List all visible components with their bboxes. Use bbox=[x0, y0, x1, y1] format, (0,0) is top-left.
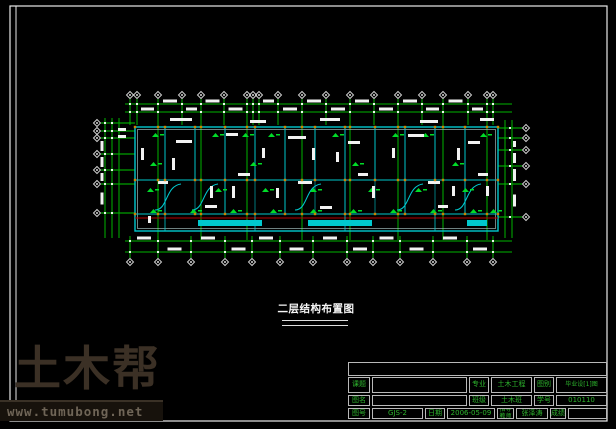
titleblock-value-grade bbox=[568, 408, 607, 419]
text-annotations bbox=[101, 100, 517, 254]
titleblock-topic-row bbox=[348, 362, 607, 376]
titleblock-label-student-id: 学号 bbox=[534, 395, 554, 406]
titleblock-value-date: 2006-05-09 bbox=[447, 408, 495, 419]
titleblock-value-class: 土木班 bbox=[491, 395, 532, 406]
titleblock-label-grade: 成绩 bbox=[550, 408, 566, 419]
titleblock-label-drawing-name: 图名 bbox=[348, 395, 370, 406]
titleblock-value-drawing-name bbox=[372, 395, 467, 406]
drawing-caption: 二层结构布置图 bbox=[272, 301, 360, 316]
beam-markers bbox=[147, 133, 502, 213]
axis-bubbles bbox=[94, 92, 530, 266]
titleblock-value-advisor: 张泽涛 bbox=[516, 408, 548, 419]
axis-grid-lines bbox=[101, 99, 522, 258]
titleblock-value-topic bbox=[372, 377, 467, 393]
titleblock-label-class: 班级 bbox=[469, 395, 489, 406]
titleblock-label-date: 日期 bbox=[425, 408, 445, 419]
titleblock-value-major: 土木工程 bbox=[491, 377, 532, 393]
cad-drawing-sheet: 二层结构布置图 课题 专业 土木工程 图别 毕业设[1]图 图名 班级 土木班 … bbox=[0, 0, 616, 429]
column-dots bbox=[134, 126, 499, 215]
titleblock-label-drawing-no: 图号 bbox=[348, 408, 370, 419]
titleblock-value-drawing-type: 毕业设[1]图 bbox=[556, 377, 607, 393]
titleblock-value-drawing-no: GJS-2 bbox=[372, 408, 423, 419]
watermark-band: www.tumubong.net bbox=[0, 400, 163, 421]
watermark-logo: 土木帮 bbox=[14, 346, 184, 393]
watermark-url: www.tumubong.net bbox=[0, 404, 143, 419]
titleblock-label-advisor: 指导教师 bbox=[497, 408, 514, 419]
caption-underline bbox=[282, 320, 348, 326]
titleblock-label-drawing-type: 图别 bbox=[534, 377, 554, 393]
titleblock-value-student-id: 010110 bbox=[556, 395, 607, 406]
titleblock-label-topic: 课题 bbox=[348, 377, 370, 393]
titleblock-label-major: 专业 bbox=[469, 377, 489, 393]
